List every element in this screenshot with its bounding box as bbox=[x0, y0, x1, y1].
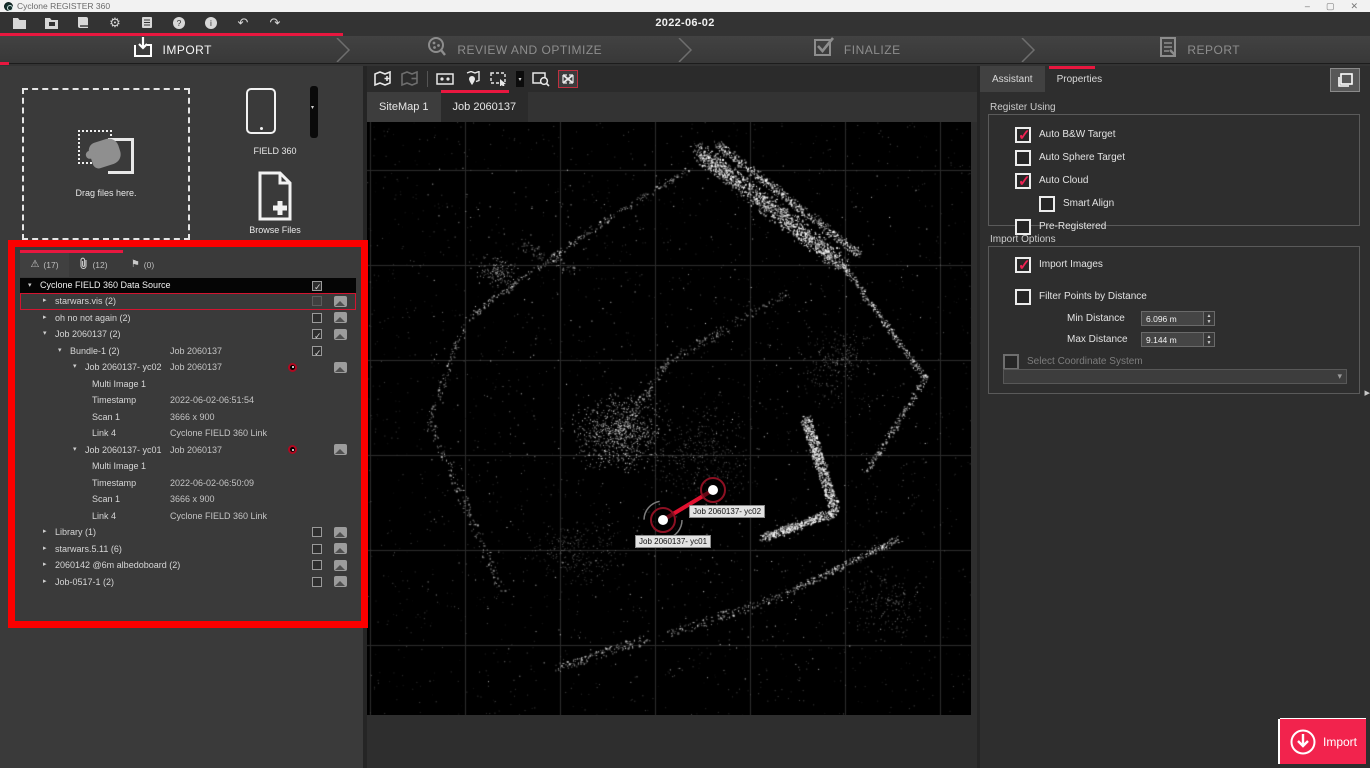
expand-arrow-icon[interactable]: ▸ bbox=[43, 557, 53, 574]
tree-tab-count: (12) bbox=[92, 260, 107, 270]
scan-dot bbox=[658, 515, 668, 525]
tree-row-label: starwars.5.11 (6) bbox=[55, 541, 122, 558]
scan-position-yc01[interactable] bbox=[650, 507, 676, 533]
tree-row-label: Cyclone FIELD 360 Data Source bbox=[40, 278, 171, 293]
review-magnifier-icon bbox=[425, 36, 449, 63]
expand-arrow-icon[interactable]: ▾ bbox=[73, 359, 83, 376]
stage-label: IMPORT bbox=[163, 43, 212, 57]
panel-layout-button[interactable] bbox=[1330, 68, 1360, 92]
project-date: 2022-06-02 bbox=[0, 17, 1370, 29]
import-circle-icon bbox=[1289, 728, 1317, 756]
maximize-button[interactable]: ▢ bbox=[1326, 0, 1335, 12]
max-distance-stepper[interactable]: ▲▼ bbox=[1203, 333, 1214, 346]
drag-files-dropzone[interactable]: Drag files here. bbox=[22, 88, 190, 240]
min-distance-input[interactable]: 6.096 m ▲▼ bbox=[1141, 311, 1215, 326]
tree-row[interactable]: ▸2060142 @6m albedoboard (2) bbox=[20, 557, 356, 574]
stage-finalize[interactable]: FINALIZE bbox=[685, 36, 1028, 63]
map-remove-icon[interactable] bbox=[400, 70, 420, 88]
tree-row[interactable]: Scan 13666 x 900 bbox=[20, 409, 356, 426]
window-title: Cyclone REGISTER 360 bbox=[17, 1, 110, 11]
expand-arrow-icon[interactable]: ▾ bbox=[73, 442, 83, 459]
expand-arrow-icon[interactable]: ▸ bbox=[43, 293, 53, 310]
viewport-tabs: SiteMap 1 Job 2060137 bbox=[367, 92, 980, 122]
thumbnail-icon[interactable] bbox=[334, 543, 347, 554]
tree-row[interactable]: ▸Job-0517-1 (2) bbox=[20, 574, 356, 591]
tree-tab-flag[interactable]: ⚑(0) bbox=[118, 252, 167, 277]
image-link-icon[interactable] bbox=[435, 70, 455, 88]
checkbox-auto-b-w-target[interactable]: Auto B&W Target bbox=[1015, 123, 1359, 146]
browse-files-label: Browse Files bbox=[200, 225, 350, 235]
tab-sitemap-1[interactable]: SiteMap 1 bbox=[367, 92, 441, 122]
import-options-group: Import Images Filter Points by Distance … bbox=[988, 246, 1360, 394]
row-checkbox[interactable] bbox=[312, 527, 322, 537]
tab-assistant[interactable]: Assistant bbox=[980, 66, 1045, 92]
min-distance-row: Min Distance 6.096 m ▲▼ bbox=[1015, 308, 1359, 329]
checkbox-label: Auto Sphere Target bbox=[1039, 152, 1125, 163]
panel-expand-arrow[interactable]: ▸ bbox=[1364, 386, 1370, 399]
checkbox-auto-cloud[interactable]: Auto Cloud bbox=[1015, 169, 1359, 192]
status-dot-icon bbox=[288, 445, 297, 454]
tree-tab-indicator bbox=[20, 250, 123, 253]
tree-row[interactable]: Timestamp2022-06-02-06:51:54 bbox=[20, 392, 356, 409]
menubar: ⚙?i↶↷ 2022-06-02 bbox=[0, 12, 1370, 33]
sitemap-viewport-panel: ▾ SiteMap 1 Job 2060137 Job 2060137- yc0… bbox=[367, 66, 980, 768]
checkbox-label: Pre-Registered bbox=[1039, 221, 1106, 232]
tree-tab-count: (17) bbox=[43, 260, 58, 270]
tree-row[interactable]: ▾Cyclone FIELD 360 Data Source bbox=[20, 278, 356, 293]
tab-job-2060137[interactable]: Job 2060137 bbox=[441, 92, 529, 122]
thumbnail-icon[interactable] bbox=[334, 362, 347, 373]
tree-row-label: Link 4 bbox=[92, 425, 116, 442]
tree-row-label: Scan 1 bbox=[92, 491, 120, 508]
add-file-icon bbox=[200, 171, 350, 221]
tree-row[interactable]: ▾Job 2060137- yc01Job 2060137 bbox=[20, 442, 356, 459]
scan-label-yc02: Job 2060137- yc02 bbox=[689, 505, 765, 518]
field360-slider[interactable] bbox=[310, 86, 318, 138]
tree-row[interactable]: Timestamp2022-06-02-06:50:09 bbox=[20, 475, 356, 492]
tree-row-label: Job 2060137- yc02 bbox=[85, 359, 162, 376]
expand-arrow-icon[interactable]: ▸ bbox=[43, 524, 53, 541]
tree-row-label: Job 2060137- yc01 bbox=[85, 442, 162, 459]
stage-review-and-optimize[interactable]: REVIEW AND OPTIMIZE bbox=[343, 36, 686, 63]
tablet-icon bbox=[246, 88, 276, 134]
minimize-button[interactable]: – bbox=[1305, 0, 1310, 12]
thumbnail-icon[interactable] bbox=[334, 576, 347, 587]
coordinate-system-dropdown[interactable] bbox=[1003, 369, 1347, 384]
browse-files-button[interactable]: Browse Files bbox=[200, 171, 350, 246]
tree-row-value: 2022-06-02-06:51:54 bbox=[170, 392, 254, 409]
tree-row[interactable]: ▸Library (1) bbox=[20, 524, 356, 541]
tree-row[interactable]: ▸starwars.5.11 (6) bbox=[20, 541, 356, 558]
expand-arrow-icon[interactable]: ▾ bbox=[28, 278, 38, 293]
stage-report[interactable]: REPORT bbox=[1028, 36, 1370, 63]
checkbox-label: Smart Align bbox=[1063, 198, 1114, 209]
tree-row-label: oh no not again (2) bbox=[55, 310, 131, 327]
row-checkbox[interactable] bbox=[312, 544, 322, 554]
thumbnail-icon[interactable] bbox=[334, 527, 347, 538]
tree-row-value: Job 2060137 bbox=[170, 442, 222, 459]
field360-label: FIELD 360 bbox=[200, 146, 350, 156]
expand-arrow-icon[interactable]: ▸ bbox=[43, 541, 53, 558]
expand-arrow-icon[interactable]: ▾ bbox=[43, 326, 53, 343]
tree-row-value: Job 2060137 bbox=[170, 359, 222, 376]
select-dropdown-caret[interactable]: ▾ bbox=[516, 71, 524, 87]
right-panel-tabs: Assistant Properties bbox=[980, 66, 1370, 92]
checkbox-import-images[interactable]: Import Images bbox=[1015, 253, 1359, 276]
tree-row-label: Multi Image 1 bbox=[92, 458, 146, 475]
scan-label-yc01: Job 2060137- yc01 bbox=[635, 535, 711, 548]
checkbox-auto-sphere-target[interactable]: Auto Sphere Target bbox=[1015, 146, 1359, 169]
toolbar-underline bbox=[0, 33, 343, 36]
tree-row-label: 2060142 @6m albedoboard (2) bbox=[55, 557, 180, 574]
row-checkbox[interactable] bbox=[312, 281, 322, 291]
tree-row-label: Job-0517-1 (2) bbox=[55, 574, 114, 591]
thumbnail-icon[interactable] bbox=[334, 560, 347, 571]
tree-row[interactable]: Link 4Cyclone FIELD 360 Link bbox=[20, 425, 356, 442]
tree-row-value: Cyclone FIELD 360 Link bbox=[170, 508, 267, 525]
tree-row[interactable]: Link 4Cyclone FIELD 360 Link bbox=[20, 508, 356, 525]
tree-tab-count: (0) bbox=[144, 260, 154, 270]
checkbox-label: Auto B&W Target bbox=[1039, 129, 1116, 140]
tree-row-value: 2022-06-02-06:50:09 bbox=[170, 475, 254, 492]
assistant-panel: Assistant Properties Register Using Auto… bbox=[980, 66, 1370, 768]
move-arrows-icon[interactable] bbox=[558, 70, 578, 88]
register-using-title: Register Using bbox=[990, 102, 1056, 113]
checkbox[interactable] bbox=[1015, 150, 1031, 166]
stage-label: REPORT bbox=[1187, 43, 1240, 57]
tree-row-label: starwars.vis (2) bbox=[55, 293, 116, 310]
checkbox-pre-registered[interactable]: Pre-Registered bbox=[1015, 215, 1359, 238]
checkbox[interactable] bbox=[1015, 289, 1031, 305]
drag-files-label: Drag files here. bbox=[75, 188, 136, 198]
stage-import[interactable]: IMPORT bbox=[0, 36, 343, 63]
tree-row[interactable]: ▸oh no not again (2) bbox=[20, 310, 356, 327]
row-checkbox[interactable] bbox=[312, 313, 322, 323]
tree-tabs: ⚠(17)(12)⚑(0) bbox=[20, 252, 350, 277]
row-checkbox[interactable] bbox=[312, 346, 322, 356]
tree-row-label: Link 4 bbox=[92, 508, 116, 525]
tree-row-label: Library (1) bbox=[55, 524, 96, 541]
row-checkbox[interactable] bbox=[312, 296, 322, 306]
checkbox[interactable] bbox=[1015, 257, 1031, 273]
tree-row[interactable]: Scan 13666 x 900 bbox=[20, 491, 356, 508]
expand-arrow-icon[interactable]: ▾ bbox=[58, 343, 68, 360]
map-pin-icon[interactable] bbox=[462, 70, 482, 88]
register-using-group: Auto B&W TargetAuto Sphere TargetAuto Cl… bbox=[988, 114, 1360, 226]
import-button-label: Import bbox=[1323, 735, 1357, 749]
paperclip-icon bbox=[79, 257, 88, 272]
thumbnail-icon[interactable] bbox=[334, 444, 347, 455]
tree-row-value: 3666 x 900 bbox=[170, 491, 215, 508]
tree-row-value: Job 2060137 bbox=[170, 343, 222, 360]
field360-button[interactable] bbox=[242, 88, 280, 140]
tree-row-value: Cyclone FIELD 360 Link bbox=[170, 425, 267, 442]
tree-row[interactable]: ▾Bundle-1 (2)Job 2060137 bbox=[20, 343, 356, 360]
expand-arrow-icon[interactable]: ▸ bbox=[43, 574, 53, 591]
point-cloud-viewport[interactable]: Job 2060137- yc02 Job 2060137- yc01 bbox=[367, 122, 971, 715]
thumbnail-icon[interactable] bbox=[334, 296, 347, 307]
flag-icon: ⚑ bbox=[131, 259, 140, 270]
workflow-bar: IMPORT REVIEW AND OPTIMIZE FINALIZE REPO… bbox=[0, 36, 1370, 64]
checkbox[interactable] bbox=[1039, 196, 1055, 212]
titlebar: Cyclone REGISTER 360 – ▢ ✕ bbox=[0, 0, 1370, 12]
tree-row[interactable]: ▾Job 2060137 (2) bbox=[20, 326, 356, 343]
import-download-icon bbox=[131, 36, 155, 63]
tree-row[interactable]: Multi Image 1 bbox=[20, 376, 356, 393]
red-indicator-stub bbox=[0, 62, 9, 65]
tree-tab-warning-triangle[interactable]: ⚠(17) bbox=[20, 252, 69, 277]
import-source-panel: Drag files here. FIELD 360 Browse Files … bbox=[0, 66, 363, 768]
thumbnail-icon[interactable] bbox=[334, 312, 347, 323]
row-checkbox[interactable] bbox=[312, 560, 322, 570]
tree-row[interactable]: ▾Job 2060137- yc02Job 2060137 bbox=[20, 359, 356, 376]
checkbox[interactable] bbox=[1015, 219, 1031, 235]
rect-select-icon[interactable] bbox=[489, 70, 509, 88]
checkbox[interactable] bbox=[1015, 173, 1031, 189]
tree-row-label: Job 2060137 (2) bbox=[55, 326, 121, 343]
tree-row-label: Timestamp bbox=[92, 392, 136, 409]
checkbox-smart-align[interactable]: Smart Align bbox=[1015, 192, 1359, 215]
scan-dot bbox=[708, 485, 718, 495]
status-dot-icon bbox=[288, 363, 297, 372]
map-add-icon[interactable] bbox=[373, 70, 393, 88]
point-cloud-canvas[interactable] bbox=[367, 122, 971, 715]
expand-arrow-icon[interactable]: ▸ bbox=[43, 310, 53, 327]
stage-label: FINALIZE bbox=[844, 43, 901, 57]
warning-triangle-icon: ⚠ bbox=[30, 259, 39, 270]
thumbnail-icon[interactable] bbox=[334, 329, 347, 340]
tree-tab-paperclip[interactable]: (12) bbox=[69, 252, 118, 277]
checkbox-filter-points[interactable]: Filter Points by Distance bbox=[1015, 285, 1359, 308]
toolbar-separator bbox=[427, 71, 428, 87]
row-checkbox[interactable] bbox=[312, 329, 322, 339]
data-source-tree: ▾Cyclone FIELD 360 Data Source▸starwars.… bbox=[20, 278, 356, 650]
tree-row-value: 3666 x 900 bbox=[170, 409, 215, 426]
min-distance-stepper[interactable]: ▲▼ bbox=[1203, 312, 1214, 325]
tree-row-label: Bundle-1 (2) bbox=[70, 343, 120, 360]
tree-row-label: Multi Image 1 bbox=[92, 376, 146, 393]
tree-row[interactable]: ▸starwars.vis (2) bbox=[20, 293, 356, 310]
import-options-title: Import Options bbox=[990, 234, 1056, 245]
viewport-toolbar: ▾ bbox=[367, 66, 980, 92]
grab-hand-icon bbox=[78, 130, 134, 178]
tree-row-label: Timestamp bbox=[92, 475, 136, 492]
close-button[interactable]: ✕ bbox=[1350, 0, 1358, 12]
row-checkbox[interactable] bbox=[312, 577, 322, 587]
tree-row[interactable]: Multi Image 1 bbox=[20, 458, 356, 475]
checkbox[interactable] bbox=[1015, 127, 1031, 143]
max-distance-input[interactable]: 9.144 m ▲▼ bbox=[1141, 332, 1215, 347]
import-button[interactable]: Import bbox=[1280, 719, 1366, 764]
report-document-icon bbox=[1157, 36, 1179, 63]
app-logo-icon bbox=[4, 2, 13, 11]
checkbox-label: Auto Cloud bbox=[1039, 175, 1088, 186]
image-zoom-icon[interactable] bbox=[531, 70, 551, 88]
tree-row-label: Scan 1 bbox=[92, 409, 120, 426]
windows-stack-icon bbox=[1336, 72, 1354, 88]
scan-position-yc02[interactable] bbox=[700, 477, 726, 503]
stage-label: REVIEW AND OPTIMIZE bbox=[457, 43, 602, 57]
max-distance-row: Max Distance 9.144 m ▲▼ bbox=[1015, 329, 1359, 350]
cyclone-register-360-window: Cyclone REGISTER 360 – ▢ ✕ ⚙?i↶↷ 2022-06… bbox=[0, 0, 1370, 768]
checkbox[interactable] bbox=[1003, 354, 1019, 370]
finalize-checkbox-icon bbox=[812, 36, 836, 63]
tab-properties[interactable]: Properties bbox=[1045, 66, 1115, 92]
